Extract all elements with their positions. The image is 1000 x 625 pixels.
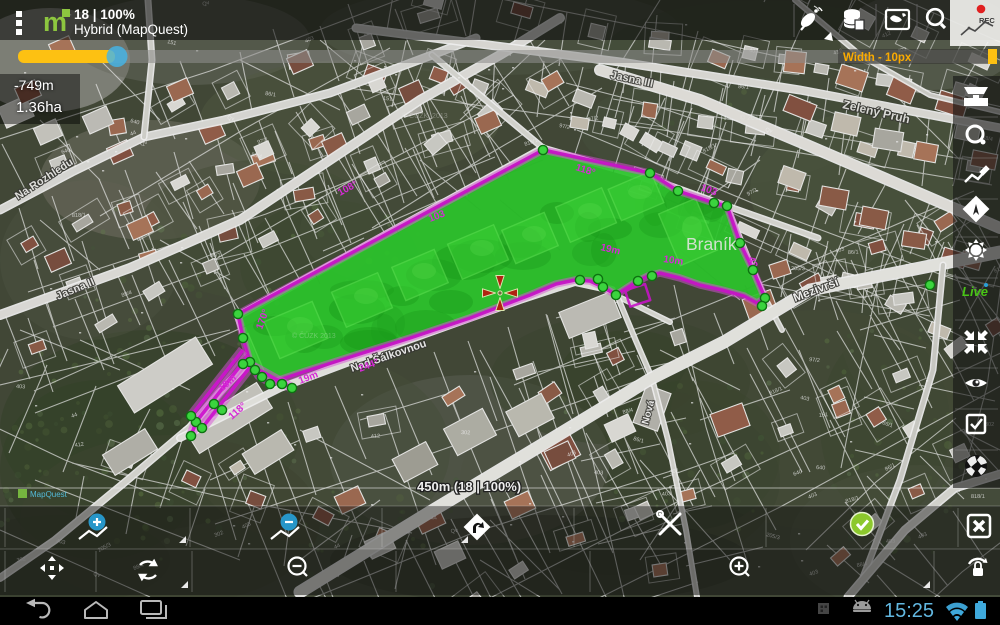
- svg-text:Live: Live: [962, 284, 988, 299]
- svg-text:18 | 100%: 18 | 100%: [74, 7, 135, 22]
- svg-text:15:25: 15:25: [884, 600, 934, 622]
- svg-text:Width - 10px: Width - 10px: [843, 52, 912, 64]
- svg-text:Hybrid (MapQuest): Hybrid (MapQuest): [74, 22, 188, 37]
